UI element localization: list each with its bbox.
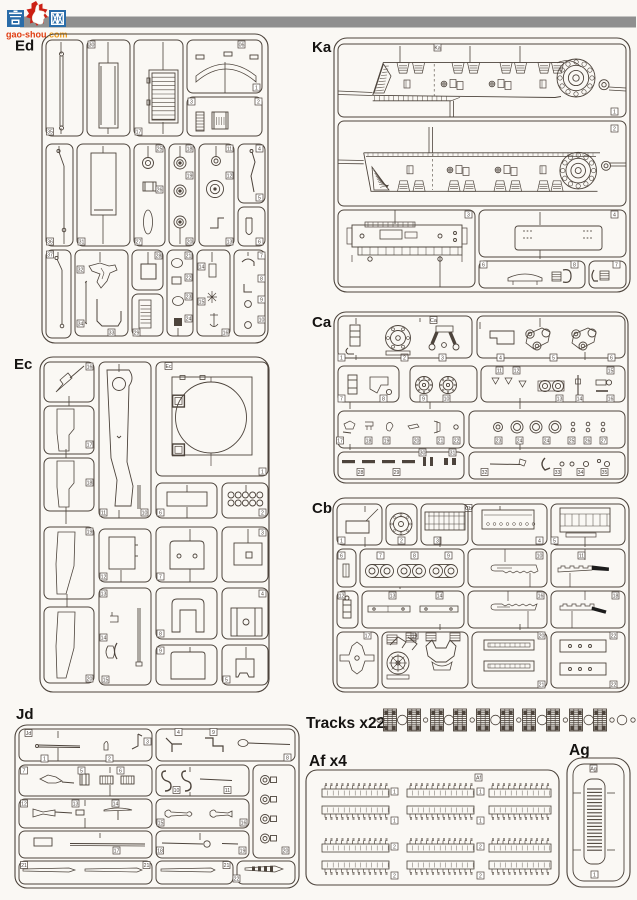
svg-text:18: 18 [613,593,619,599]
svg-text:19: 19 [412,633,418,639]
svg-text:16: 16 [538,593,544,599]
svg-text:3: 3 [190,99,193,105]
svg-text:20: 20 [87,676,93,682]
svg-text:18: 18 [366,438,372,444]
svg-text:Ka: Ka [434,45,440,51]
svg-text:2: 2 [393,873,396,879]
svg-text:1: 1 [393,789,396,795]
svg-text:19: 19 [187,173,193,179]
svg-text:9: 9 [260,297,263,303]
svg-text:1: 1 [43,756,46,762]
svg-text:2: 2 [400,538,403,544]
svg-text:8: 8 [413,553,416,559]
svg-text:9: 9 [212,730,215,736]
svg-text:21: 21 [144,863,150,869]
svg-text:3: 3 [441,355,444,361]
svg-text:17: 17 [365,633,371,639]
svg-text:22: 22 [454,438,460,444]
svg-text:7: 7 [379,553,382,559]
svg-text:1: 1 [479,818,482,824]
svg-text:12: 12 [339,593,345,599]
svg-text:12: 12 [227,173,233,179]
svg-text:24: 24 [544,438,550,444]
svg-text:15: 15 [158,820,164,826]
svg-text:10: 10 [142,510,148,516]
svg-text:10: 10 [259,317,265,323]
svg-text:5: 5 [225,677,228,683]
svg-text:27: 27 [601,438,607,444]
svg-text:11: 11 [101,510,106,516]
svg-text:31: 31 [450,450,456,456]
svg-text:27: 27 [136,239,142,245]
svg-text:11: 11 [497,368,502,374]
svg-text:13: 13 [227,239,233,245]
svg-text:6: 6 [610,355,613,361]
svg-text:2: 2 [257,99,260,105]
svg-text:10: 10 [537,553,543,559]
svg-text:1: 1 [261,469,264,475]
svg-text:32: 32 [482,470,488,476]
svg-text:23: 23 [186,294,192,300]
svg-text:26: 26 [585,438,591,444]
svg-text:Jd: Jd [16,706,34,723]
svg-text:2: 2 [479,873,482,879]
svg-text:Jd: Jd [26,731,32,737]
svg-text:16: 16 [223,330,229,336]
svg-text:1: 1 [255,85,258,91]
svg-text:1: 1 [593,872,596,878]
svg-text:06: 06 [239,42,245,48]
svg-text:2: 2 [479,844,482,850]
svg-text:12: 12 [101,574,107,580]
svg-text:35: 35 [47,129,53,135]
svg-text:17: 17 [87,442,93,448]
svg-text:16: 16 [241,820,247,826]
svg-text:37: 37 [47,252,53,258]
svg-text:24: 24 [517,438,523,444]
svg-text:7: 7 [159,574,162,580]
svg-text:20: 20 [414,438,420,444]
svg-text:4: 4 [499,355,502,361]
svg-text:22: 22 [234,876,240,882]
svg-text:22: 22 [611,633,617,639]
svg-text:3: 3 [146,739,149,745]
svg-text:5: 5 [80,768,83,774]
svg-text:3: 3 [467,212,470,218]
svg-text:Ag: Ag [590,766,596,772]
svg-text:12: 12 [514,368,520,374]
svg-text:16: 16 [608,396,614,402]
svg-text:31: 31 [79,239,85,245]
svg-text:20: 20 [283,848,289,854]
svg-text:21: 21 [438,438,444,444]
svg-text:1: 1 [393,818,396,824]
svg-text:18: 18 [87,480,93,486]
svg-text:20: 20 [539,633,545,639]
svg-text:Ca: Ca [430,318,437,324]
svg-text:10: 10 [174,788,180,794]
svg-text:14: 14 [113,801,119,807]
svg-text:13: 13 [557,396,563,402]
svg-text:18: 18 [157,848,163,854]
svg-text:8: 8 [573,262,576,268]
svg-text:34: 34 [578,470,584,476]
svg-text:5: 5 [258,195,261,201]
svg-text:15: 15 [608,368,614,374]
svg-text:36: 36 [47,239,53,245]
svg-text:4: 4 [613,212,616,218]
svg-text:32: 32 [78,267,84,273]
svg-text:21: 21 [186,253,192,259]
svg-text:30: 30 [89,42,95,48]
svg-text:Ec: Ec [165,364,171,370]
svg-text:18: 18 [187,146,193,152]
svg-text:1: 1 [340,538,343,544]
svg-text:5: 5 [552,355,555,361]
svg-text:7: 7 [260,253,263,259]
svg-text:16: 16 [87,364,93,370]
svg-text:4: 4 [258,146,261,152]
svg-text:8: 8 [159,631,162,637]
svg-text:28: 28 [156,253,162,259]
svg-text:14: 14 [101,635,107,641]
svg-text:7: 7 [23,768,26,774]
svg-text:2: 2 [108,756,111,762]
svg-text:15: 15 [103,677,109,683]
svg-text:4: 4 [261,591,264,597]
svg-text:3: 3 [261,530,264,536]
svg-text:35: 35 [602,470,608,476]
svg-text:33: 33 [109,330,115,336]
svg-text:6: 6 [482,262,485,268]
svg-text:6: 6 [119,768,122,774]
svg-text:24: 24 [186,316,192,322]
svg-text:29: 29 [134,330,140,336]
svg-text:Af: Af [476,775,481,781]
svg-text:21: 21 [539,682,545,688]
svg-text:17: 17 [337,438,343,444]
svg-text:4: 4 [177,730,180,736]
svg-text:Cb: Cb [465,506,472,512]
svg-text:4: 4 [538,538,541,544]
svg-text:20: 20 [187,239,193,245]
svg-text:Ka: Ka [312,39,332,56]
svg-text:8: 8 [286,755,289,761]
svg-text:26: 26 [157,187,163,193]
svg-text:Af x4: Af x4 [309,753,347,770]
svg-text:25: 25 [569,438,575,444]
svg-text:11: 11 [579,553,584,559]
svg-text:8: 8 [382,396,385,402]
svg-text:33: 33 [555,470,561,476]
svg-text:22: 22 [611,682,617,688]
svg-text:11: 11 [225,788,230,794]
svg-text:Ec: Ec [14,356,32,373]
svg-text:12: 12 [21,801,27,807]
svg-text:13: 13 [101,591,107,597]
svg-text:8: 8 [260,276,263,282]
svg-text:6: 6 [340,553,343,559]
svg-text:9: 9 [447,553,450,559]
svg-text:14: 14 [199,264,205,270]
svg-text:Ed: Ed [15,38,34,55]
svg-text:6: 6 [159,510,162,516]
svg-text:21: 21 [21,863,27,869]
svg-text:11: 11 [227,146,232,152]
svg-text:7: 7 [340,396,343,402]
svg-text:14: 14 [577,396,583,402]
svg-text:Cb: Cb [312,500,332,517]
svg-text:30: 30 [420,450,426,456]
svg-text:19: 19 [240,848,246,854]
svg-text:2: 2 [403,355,406,361]
svg-text:2: 2 [613,126,616,132]
svg-text:28: 28 [358,470,364,476]
svg-text:13: 13 [73,801,79,807]
svg-text:23: 23 [496,438,502,444]
svg-text:3: 3 [436,538,439,544]
svg-text:19: 19 [87,529,93,535]
svg-text:17: 17 [114,848,120,854]
svg-text:29: 29 [394,470,400,476]
svg-text:25: 25 [157,146,163,152]
svg-text:1: 1 [340,355,343,361]
svg-text:5: 5 [553,538,556,544]
svg-text:13: 13 [390,593,396,599]
svg-text:21: 21 [224,863,230,869]
svg-text:Tracks x22: Tracks x22 [306,715,385,732]
svg-text:19: 19 [384,438,390,444]
svg-text:9: 9 [159,648,162,654]
svg-text:6: 6 [258,239,261,245]
svg-text:9: 9 [422,396,425,402]
svg-text:34: 34 [78,321,84,327]
svg-text:7: 7 [615,262,618,268]
svg-text:Ag: Ag [569,742,590,759]
svg-text:10: 10 [444,396,450,402]
svg-text:2: 2 [393,844,396,850]
svg-text:14: 14 [437,593,443,599]
svg-text:22: 22 [186,275,192,281]
svg-text:15: 15 [199,299,205,305]
svg-text:1: 1 [479,789,482,795]
svg-text:1: 1 [613,109,616,115]
svg-text:17: 17 [136,129,142,135]
svg-text:Ca: Ca [312,314,332,331]
svg-text:2: 2 [261,510,264,516]
